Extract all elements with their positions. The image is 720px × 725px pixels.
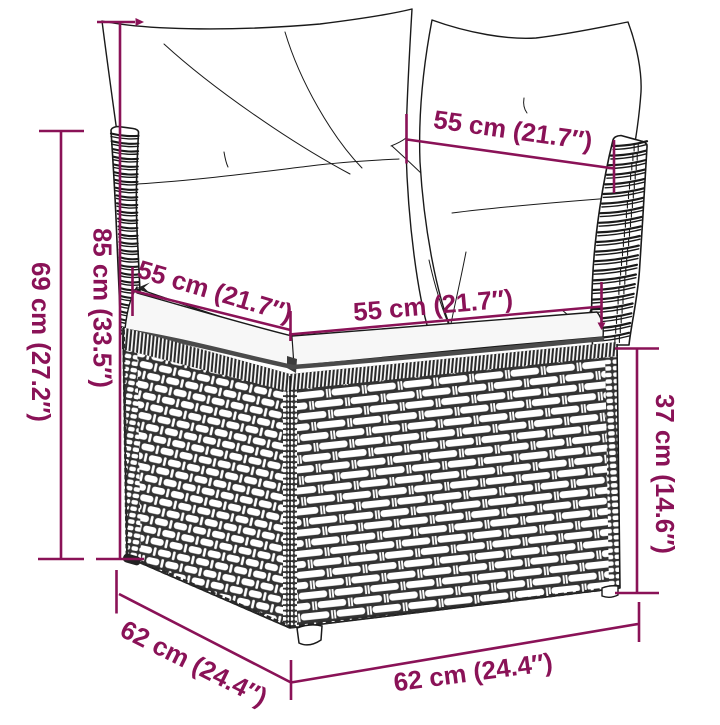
svg-text:37 cm (14.6″): 37 cm (14.6″): [650, 394, 678, 554]
svg-text:85 cm (33.5″): 85 cm (33.5″): [88, 228, 116, 388]
svg-text:69 cm (27.2″): 69 cm (27.2″): [26, 262, 54, 422]
